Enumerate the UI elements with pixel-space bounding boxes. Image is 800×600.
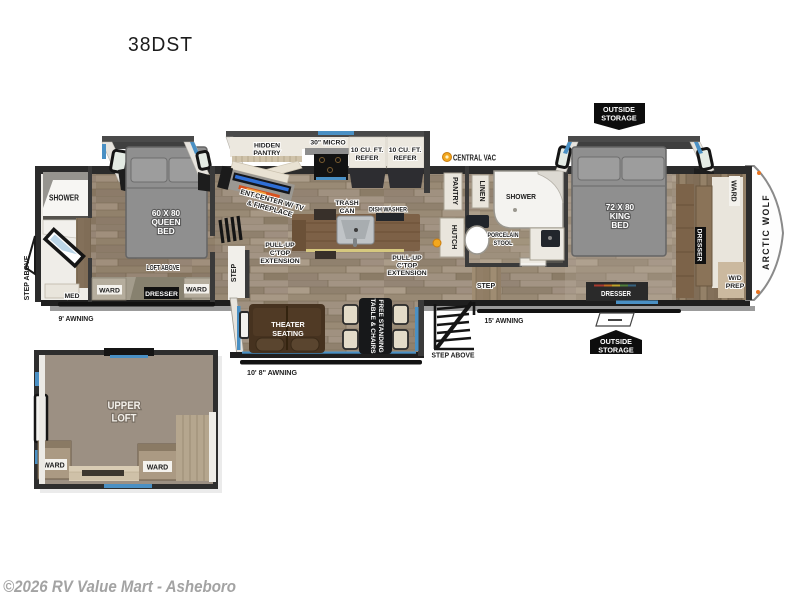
svg-text:SEATING: SEATING xyxy=(272,329,304,338)
svg-text:38DST: 38DST xyxy=(128,34,193,56)
svg-text:C'TOP: C'TOP xyxy=(270,250,291,257)
svg-text:©2026 RV Value Mart - Asheboro: ©2026 RV Value Mart - Asheboro xyxy=(3,577,236,596)
svg-text:KING: KING xyxy=(610,212,630,221)
svg-text:W/D: W/D xyxy=(728,275,741,282)
svg-text:STEP ABOVE: STEP ABOVE xyxy=(432,351,475,360)
svg-text:10 CU. FT.: 10 CU. FT. xyxy=(389,147,422,154)
svg-text:WARD: WARD xyxy=(147,465,168,472)
svg-text:DRESSER: DRESSER xyxy=(145,291,178,298)
svg-text:BED: BED xyxy=(611,221,628,230)
svg-text:EXTENSION: EXTENSION xyxy=(260,258,299,265)
svg-text:LOFT: LOFT xyxy=(112,413,137,425)
svg-text:QUEEN: QUEEN xyxy=(151,218,180,227)
svg-text:HUTCH: HUTCH xyxy=(450,225,457,250)
svg-text:HIDDEN: HIDDEN xyxy=(254,143,280,150)
svg-text:STOOL: STOOL xyxy=(494,240,513,247)
svg-text:PANTRY: PANTRY xyxy=(451,177,458,205)
svg-text:MED: MED xyxy=(64,293,79,300)
svg-text:WARD: WARD xyxy=(186,287,207,294)
svg-text:EXTENSION: EXTENSION xyxy=(387,270,426,277)
svg-text:SHOWER: SHOWER xyxy=(506,192,537,201)
svg-text:STEP ABOVE: STEP ABOVE xyxy=(24,255,31,300)
svg-text:C'TOP: C'TOP xyxy=(397,263,418,270)
svg-text:LINEN: LINEN xyxy=(478,181,485,202)
svg-text:10' 8" AWNING: 10' 8" AWNING xyxy=(247,368,297,377)
svg-text:CENTRAL VAC: CENTRAL VAC xyxy=(453,154,496,163)
svg-text:STEP: STEP xyxy=(477,283,496,290)
svg-text:PANTRY: PANTRY xyxy=(253,150,281,157)
svg-text:TABLE & CHAIRS: TABLE & CHAIRS xyxy=(369,298,376,354)
svg-text:STEP: STEP xyxy=(231,264,238,283)
svg-text:TRASH: TRASH xyxy=(335,200,359,207)
svg-text:SHOWER: SHOWER xyxy=(49,194,79,203)
svg-text:BED: BED xyxy=(157,227,174,236)
svg-text:ARCTIC WOLF: ARCTIC WOLF xyxy=(761,194,772,270)
svg-text:PULL-UP: PULL-UP xyxy=(392,255,422,262)
svg-text:UPPER: UPPER xyxy=(108,400,141,412)
svg-text:PULL-UP: PULL-UP xyxy=(265,242,295,249)
svg-text:9' AWNING: 9' AWNING xyxy=(59,314,94,323)
svg-text:LOFT ABOVE: LOFT ABOVE xyxy=(147,265,180,272)
svg-text:DISH WASHER: DISH WASHER xyxy=(369,207,407,214)
svg-text:REFER: REFER xyxy=(393,155,416,162)
svg-text:REFER: REFER xyxy=(355,155,378,162)
svg-text:WARD: WARD xyxy=(730,180,737,201)
svg-text:PREP: PREP xyxy=(726,283,745,290)
svg-text:CAN: CAN xyxy=(340,208,355,215)
svg-text:10 CU. FT.: 10 CU. FT. xyxy=(351,147,384,154)
svg-text:STORAGE: STORAGE xyxy=(601,114,637,123)
svg-text:15' AWNING: 15' AWNING xyxy=(485,316,524,325)
svg-text:DRESSER: DRESSER xyxy=(601,291,631,298)
svg-text:WARD: WARD xyxy=(99,288,120,295)
svg-text:FREE STANDING: FREE STANDING xyxy=(377,299,384,352)
svg-text:72 X 80: 72 X 80 xyxy=(606,203,635,212)
svg-text:THEATER: THEATER xyxy=(271,320,305,329)
svg-text:60 X 80: 60 X 80 xyxy=(152,209,181,218)
svg-text:30" MICRO: 30" MICRO xyxy=(310,140,345,147)
svg-text:PORCELAIN: PORCELAIN xyxy=(488,232,519,239)
svg-text:WARD: WARD xyxy=(43,463,64,470)
svg-text:STORAGE: STORAGE xyxy=(598,346,634,355)
svg-text:DRESSER: DRESSER xyxy=(696,229,703,262)
